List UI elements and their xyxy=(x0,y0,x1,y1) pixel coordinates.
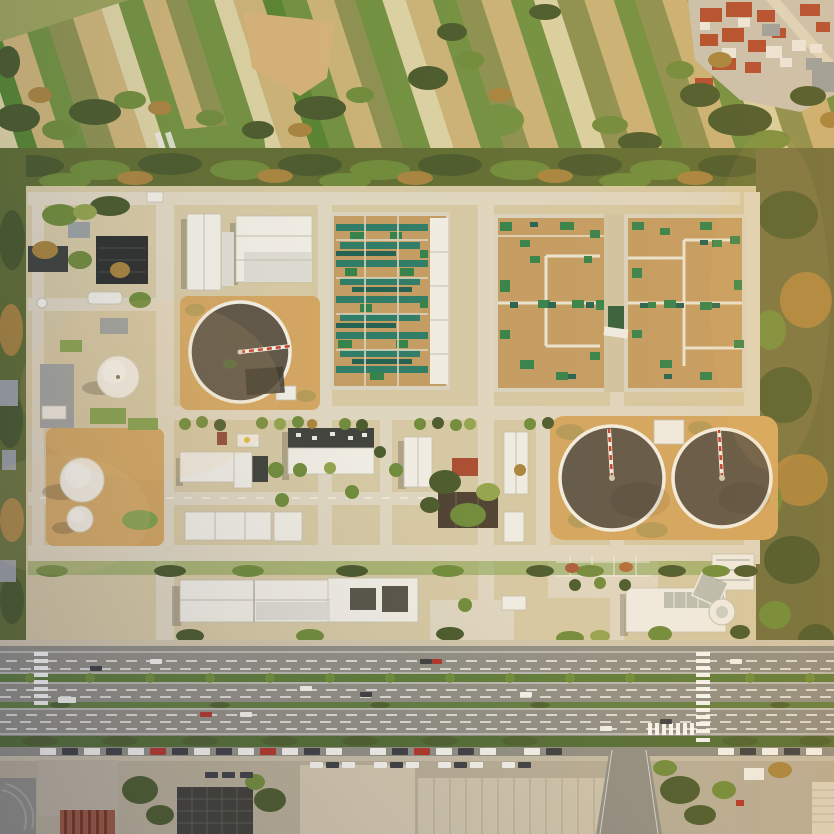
right-tree-band xyxy=(754,148,834,656)
red-kiosk xyxy=(736,800,744,806)
boulevard xyxy=(0,640,834,758)
brick-hut xyxy=(217,432,227,445)
small-white-hut xyxy=(744,768,764,780)
red-striped-roof xyxy=(60,810,115,834)
aeration-gallery xyxy=(430,218,448,384)
green-field-patch xyxy=(476,104,524,136)
membrane-basin-left xyxy=(494,214,608,392)
city-strip xyxy=(0,747,834,834)
big-roof xyxy=(418,778,608,834)
aeration-basin xyxy=(330,212,450,390)
tree-belt xyxy=(0,148,834,192)
grid-roof-building xyxy=(177,787,253,834)
curved-building xyxy=(0,778,36,834)
striped-building-right xyxy=(812,782,834,834)
left-tree-band xyxy=(0,148,26,660)
aerial-photo: Aerial drone photograph of a wastewater … xyxy=(0,0,834,834)
satellite-dish xyxy=(37,298,47,308)
clarifier-1 xyxy=(190,302,291,402)
yellow-tank-dot xyxy=(244,437,250,443)
membrane-basin-right xyxy=(624,214,746,392)
gap-structure xyxy=(608,306,624,330)
clarifier-3 xyxy=(673,429,771,527)
